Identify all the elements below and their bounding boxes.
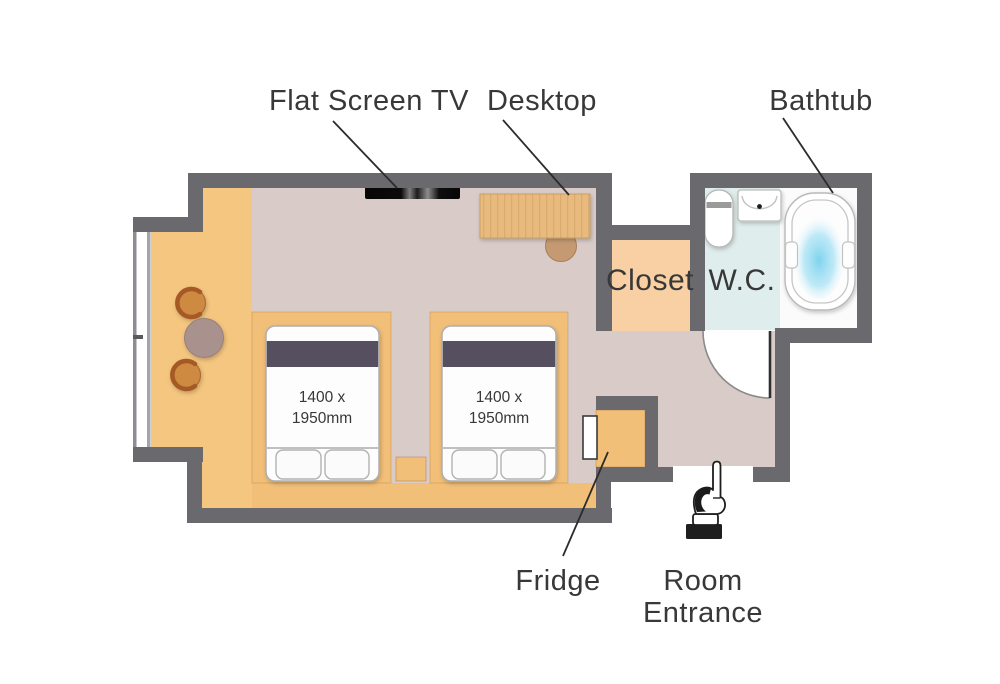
wall-hallway-right bbox=[775, 343, 790, 482]
toilet-lid-line bbox=[707, 202, 732, 208]
window-outer-frame bbox=[133, 232, 137, 447]
toilet bbox=[705, 190, 733, 247]
desktop-label: Desktop bbox=[487, 85, 597, 117]
sink bbox=[738, 190, 781, 221]
bed-1-dimensions-line1: 1400 x bbox=[299, 389, 346, 406]
flat-screen-tv bbox=[365, 187, 460, 199]
wall-bay-top bbox=[133, 217, 203, 232]
fridge-cabinet bbox=[596, 410, 645, 467]
bed-1-pillow-left bbox=[276, 450, 321, 479]
wall-closet-top bbox=[596, 225, 703, 240]
fridge-label: Fridge bbox=[515, 565, 600, 597]
pointer-cuff bbox=[693, 514, 718, 525]
wall-bottom-main bbox=[187, 508, 612, 523]
wall-bathroom-right bbox=[857, 173, 872, 343]
chair-top bbox=[177, 289, 206, 318]
closet-label: Closet bbox=[606, 264, 694, 297]
nightstand bbox=[396, 457, 426, 481]
wall-right-main bbox=[596, 173, 612, 331]
bathtub-water bbox=[794, 213, 844, 299]
wc-label: W.C. bbox=[709, 264, 776, 297]
wall-bathroom-top bbox=[690, 173, 872, 188]
bathtub-label: Bathtub bbox=[769, 85, 872, 117]
bed-2-pillow-right bbox=[501, 450, 545, 479]
window bbox=[133, 232, 151, 447]
wall-bathroom-bottom bbox=[775, 328, 872, 343]
bed-1-pillow-right bbox=[325, 450, 369, 479]
floor-plan-image: 1400 x 1950mm 1400 x 1950mm bbox=[0, 0, 1000, 684]
wall-alcove-top bbox=[596, 396, 658, 410]
bathtub-grip-right bbox=[843, 242, 855, 268]
bathtub-grip-left bbox=[786, 242, 798, 268]
round-table bbox=[185, 319, 224, 358]
bed-1: 1400 x 1950mm bbox=[266, 326, 379, 481]
bed-2-pillow-left bbox=[452, 450, 497, 479]
desk-grain bbox=[480, 194, 590, 238]
bed-2: 1400 x 1950mm bbox=[442, 326, 556, 481]
window-mullion bbox=[133, 335, 143, 339]
room-entrance-label-line2: Entrance bbox=[643, 597, 763, 629]
bed-1-dimensions-line2: 1950mm bbox=[292, 410, 352, 427]
wall-top-main bbox=[188, 173, 612, 188]
window-inner-frame bbox=[147, 232, 151, 447]
wall-alcove-right bbox=[645, 410, 658, 470]
wall-bathroom-left bbox=[690, 173, 705, 331]
fridge bbox=[583, 416, 597, 459]
bed-1-blanket-band bbox=[267, 341, 378, 367]
room-entrance-label-line1: Room bbox=[663, 565, 742, 597]
floor-plan-svg: 1400 x 1950mm 1400 x 1950mm bbox=[0, 0, 1000, 684]
wall-entrance-right bbox=[753, 467, 790, 482]
bed-2-dimensions-line2: 1950mm bbox=[469, 410, 529, 427]
flat-screen-tv-label: Flat Screen TV bbox=[269, 85, 469, 117]
bed-base-strip bbox=[252, 483, 596, 508]
pointer-pedestal bbox=[686, 524, 722, 539]
sink-drain bbox=[757, 204, 762, 209]
bed-2-dimensions-line1: 1400 x bbox=[476, 389, 523, 406]
bathtub bbox=[785, 193, 855, 310]
chair-bottom bbox=[172, 361, 201, 390]
bed-2-blanket-band bbox=[443, 341, 555, 367]
desk bbox=[480, 194, 590, 238]
